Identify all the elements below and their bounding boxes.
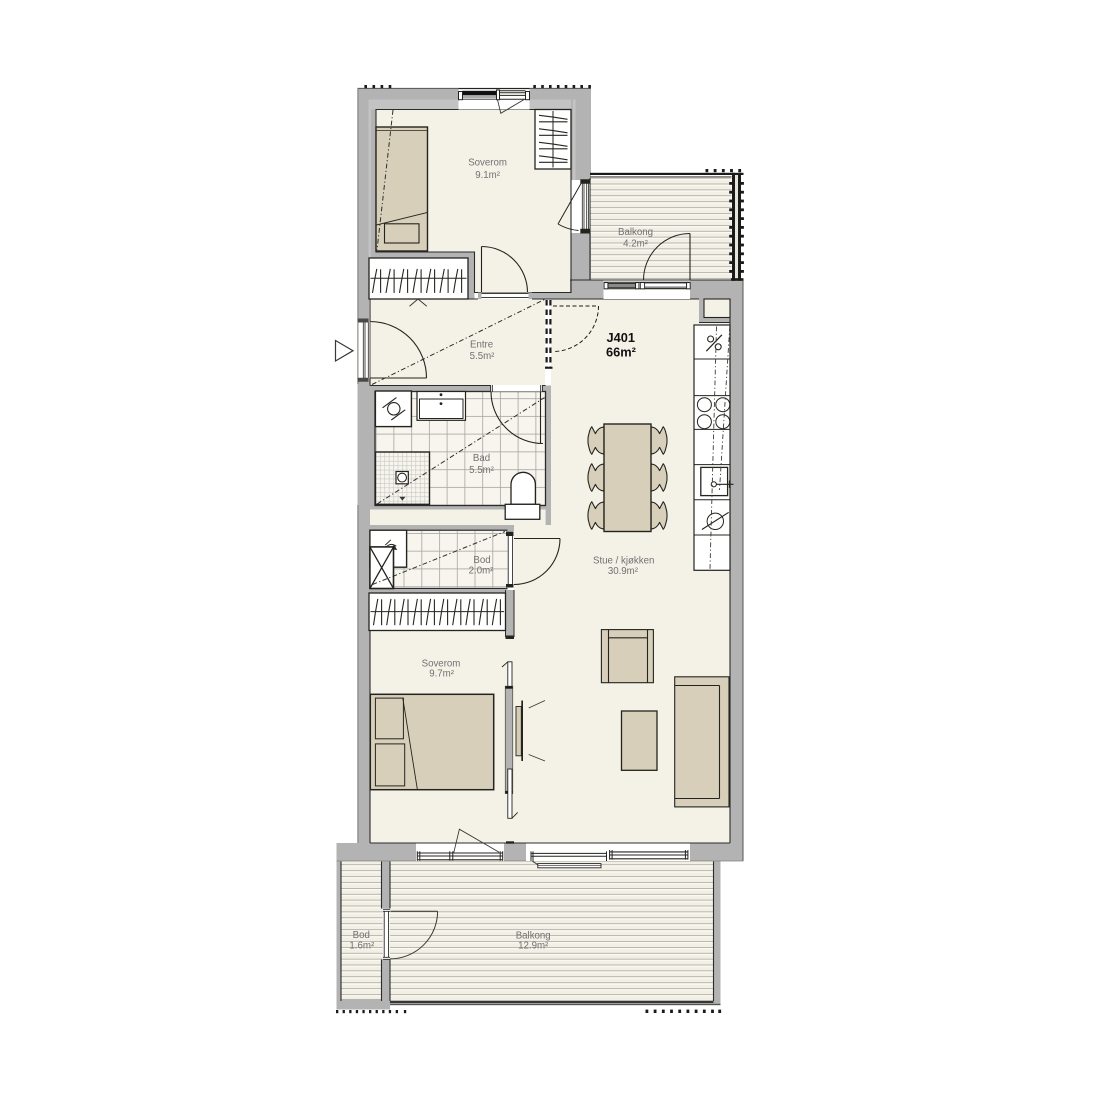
svg-text:J401: J401 — [607, 330, 635, 345]
svg-text:2.0m²: 2.0m² — [469, 566, 495, 577]
svg-text:5.5m²: 5.5m² — [470, 351, 496, 362]
svg-text:Bod: Bod — [473, 555, 490, 566]
svg-text:30.9m²: 30.9m² — [608, 566, 639, 577]
svg-text:9.7m²: 9.7m² — [429, 669, 455, 680]
svg-text:Stue / kjøkken: Stue / kjøkken — [593, 555, 654, 566]
svg-text:Soverom: Soverom — [468, 157, 507, 168]
svg-text:Bad: Bad — [473, 453, 490, 464]
svg-text:4.2m²: 4.2m² — [623, 239, 649, 250]
svg-text:66m²: 66m² — [606, 345, 636, 360]
svg-text:Entre: Entre — [470, 340, 493, 351]
svg-text:1.6m²: 1.6m² — [349, 940, 375, 951]
svg-text:12.9m²: 12.9m² — [518, 940, 549, 951]
svg-text:9.1m²: 9.1m² — [475, 170, 501, 181]
svg-text:5.5m²: 5.5m² — [469, 465, 495, 476]
svg-text:Balkong: Balkong — [618, 227, 653, 238]
